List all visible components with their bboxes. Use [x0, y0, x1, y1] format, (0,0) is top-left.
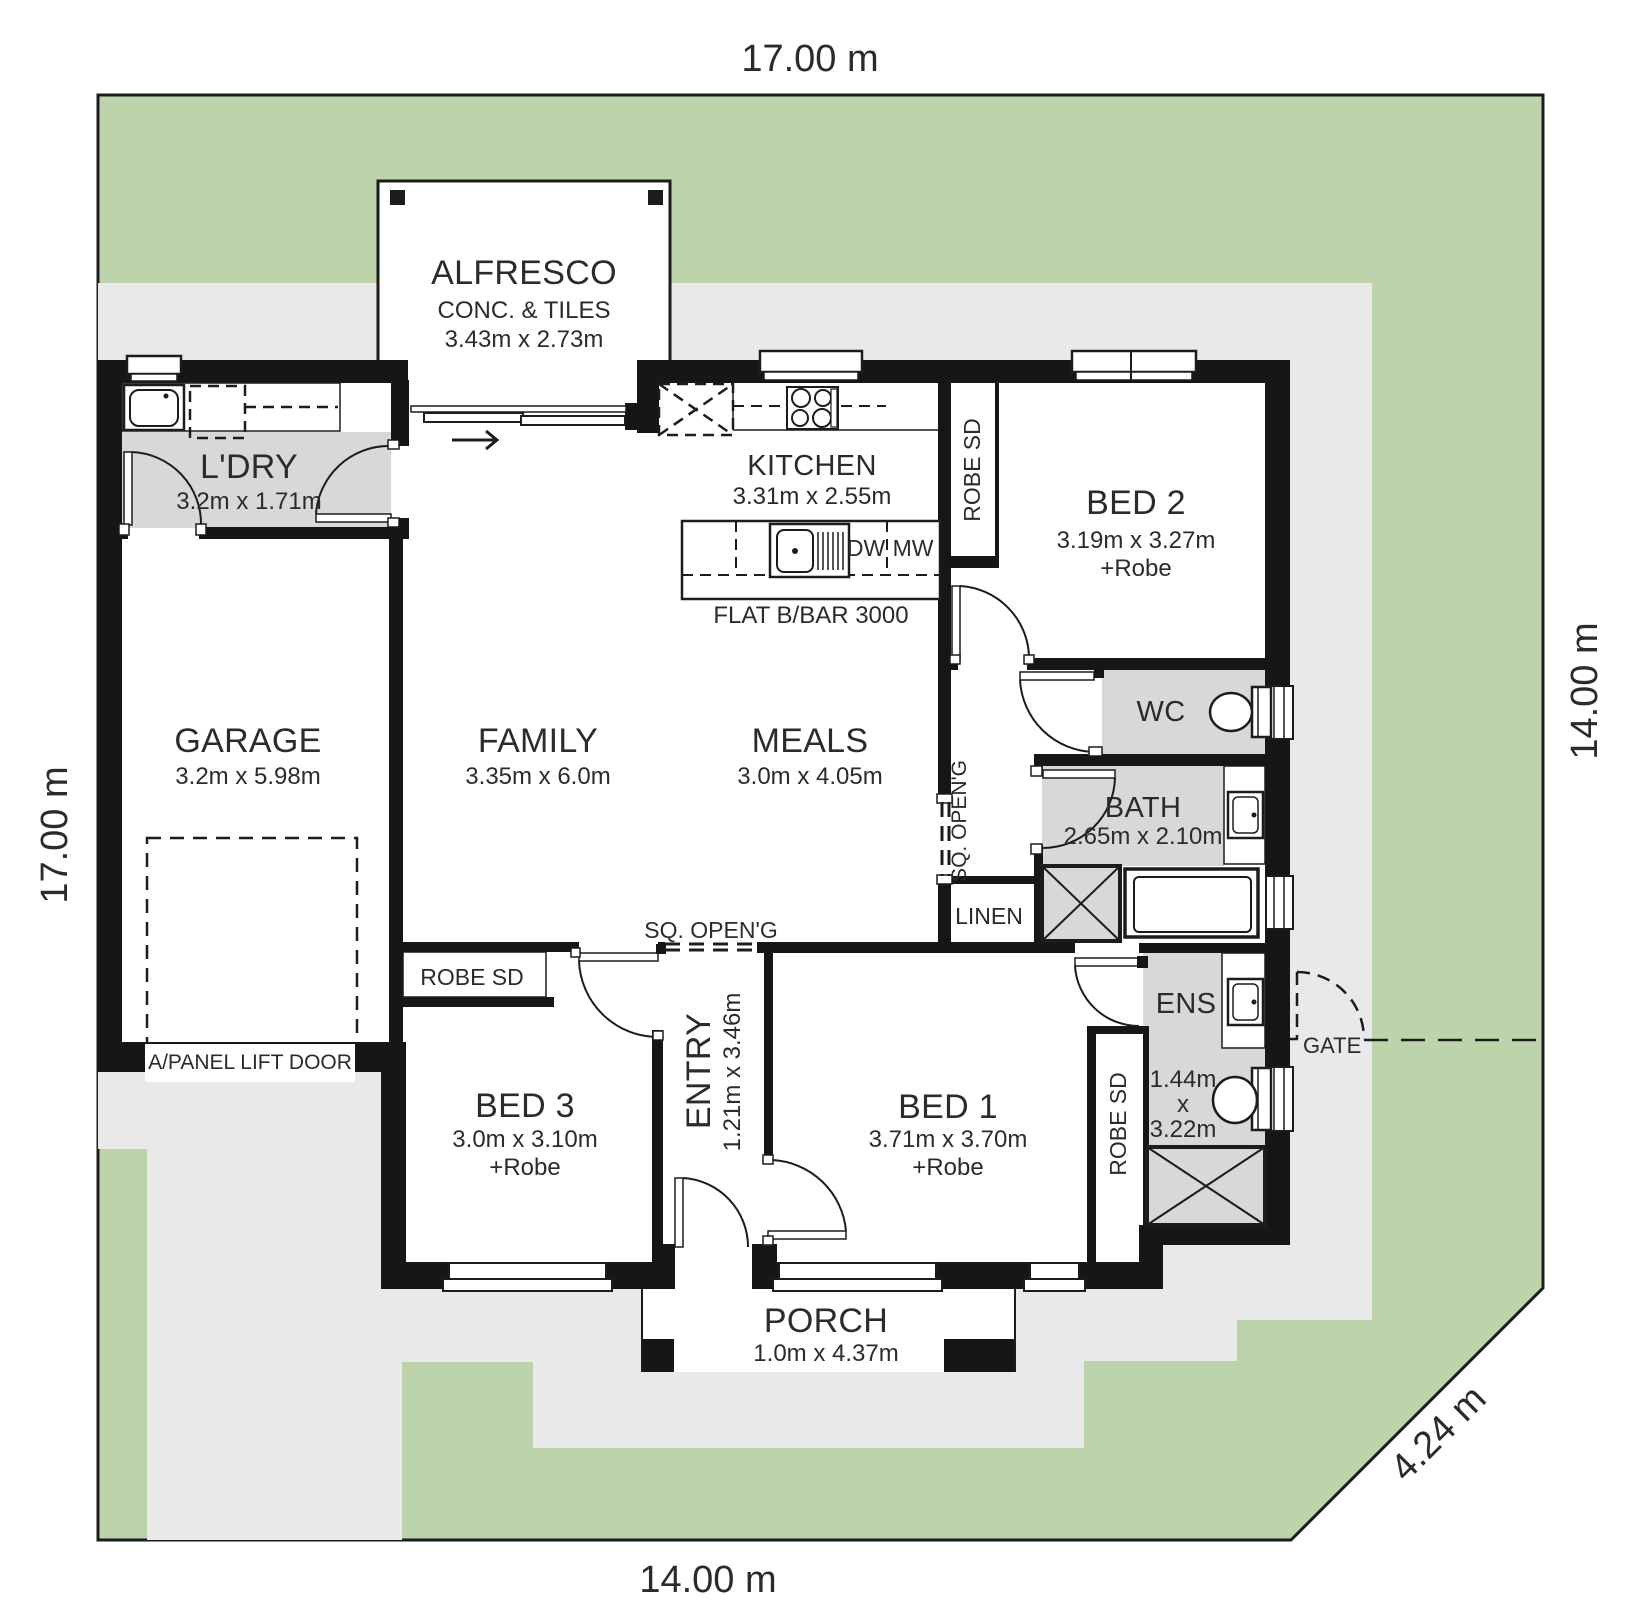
svg-text:KITCHEN: KITCHEN — [747, 450, 876, 482]
svg-text:ENTRY: ENTRY — [680, 1013, 718, 1129]
svg-text:3.31m x 2.55m: 3.31m x 2.55m — [733, 483, 892, 510]
svg-text:ROBE SD: ROBE SD — [1105, 1072, 1131, 1176]
svg-text:WC: WC — [1137, 696, 1186, 728]
svg-text:17.00 m: 17.00 m — [741, 38, 878, 80]
svg-text:1.21m x 3.46m: 1.21m x 3.46m — [719, 993, 746, 1152]
svg-text:CONC. & TILES: CONC. & TILES — [438, 297, 611, 324]
svg-text:ROBE SD: ROBE SD — [420, 964, 524, 990]
svg-text:3.2m x 1.71m: 3.2m x 1.71m — [176, 488, 321, 515]
svg-text:+Robe: +Robe — [489, 1154, 560, 1181]
svg-text:MEALS: MEALS — [752, 722, 869, 760]
svg-text:1.44m: 1.44m — [1150, 1066, 1217, 1093]
svg-text:3.35m x 6.0m: 3.35m x 6.0m — [465, 763, 610, 790]
svg-text:FLAT B/BAR 3000: FLAT B/BAR 3000 — [713, 602, 908, 629]
svg-text:GATE: GATE — [1303, 1033, 1361, 1058]
svg-text:ENS: ENS — [1156, 988, 1217, 1020]
svg-text:3.22m: 3.22m — [1150, 1116, 1217, 1143]
svg-text:3.43m x 2.73m: 3.43m x 2.73m — [445, 326, 604, 353]
svg-text:3.19m x 3.27m: 3.19m x 3.27m — [1057, 527, 1216, 554]
svg-text:MW: MW — [893, 535, 934, 561]
svg-text:BED 1: BED 1 — [898, 1088, 998, 1126]
svg-text:3.71m x 3.70m: 3.71m x 3.70m — [869, 1126, 1028, 1153]
svg-text:SQ. OPEN'G: SQ. OPEN'G — [948, 760, 971, 882]
svg-text:17.00 m: 17.00 m — [34, 766, 76, 903]
svg-text:BED 2: BED 2 — [1086, 484, 1186, 522]
svg-text:3.0m x 3.10m: 3.0m x 3.10m — [452, 1126, 597, 1153]
svg-text:3.0m x 4.05m: 3.0m x 4.05m — [737, 763, 882, 790]
svg-text:14.00 m: 14.00 m — [639, 1559, 776, 1601]
svg-text:1.0m x 4.37m: 1.0m x 4.37m — [753, 1340, 898, 1367]
svg-text:GARAGE: GARAGE — [174, 722, 321, 760]
svg-text:L'DRY: L'DRY — [200, 448, 298, 486]
svg-text:+Robe: +Robe — [912, 1154, 983, 1181]
svg-text:+Robe: +Robe — [1100, 555, 1171, 582]
svg-text:ROBE SD: ROBE SD — [959, 418, 985, 522]
svg-text:DW: DW — [847, 535, 886, 561]
svg-text:FAMILY: FAMILY — [478, 722, 598, 760]
svg-text:LINEN: LINEN — [955, 903, 1023, 929]
svg-text:x: x — [1177, 1091, 1189, 1118]
svg-text:SQ. OPEN'G: SQ. OPEN'G — [644, 917, 777, 943]
svg-text:14.00 m: 14.00 m — [1564, 622, 1606, 759]
svg-text:2.65m x 2.10m: 2.65m x 2.10m — [1064, 823, 1223, 850]
svg-text:PORCH: PORCH — [764, 1302, 888, 1340]
svg-text:ALFRESCO: ALFRESCO — [431, 254, 617, 292]
svg-text:BED 3: BED 3 — [475, 1087, 575, 1125]
svg-text:A/PANEL LIFT DOOR: A/PANEL LIFT DOOR — [148, 1051, 352, 1074]
svg-text:3.2m x 5.98m: 3.2m x 5.98m — [175, 763, 320, 790]
svg-text:BATH: BATH — [1105, 792, 1181, 824]
